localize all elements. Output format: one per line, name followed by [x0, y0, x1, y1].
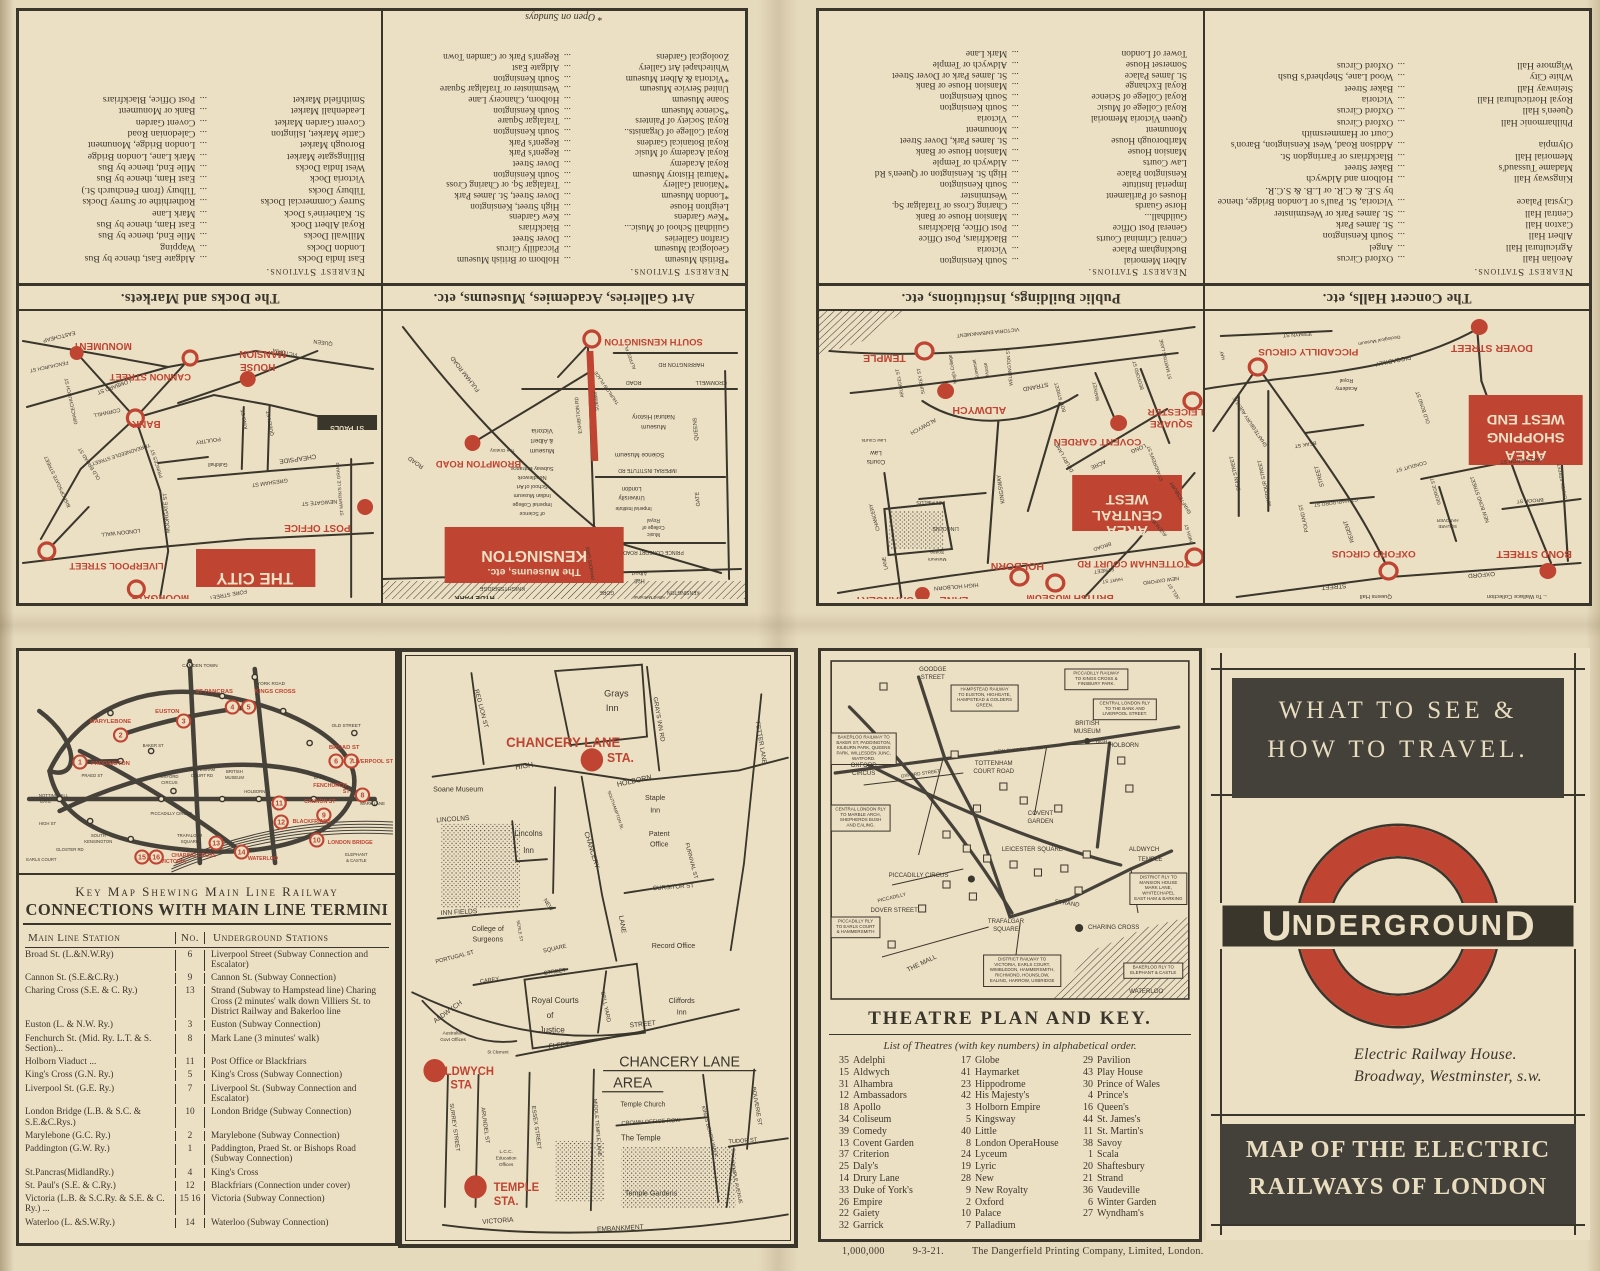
leader-dots: ... — [1393, 173, 1409, 184]
map-label: ROAD — [626, 379, 642, 385]
leader-dots: ... — [1393, 82, 1409, 93]
panel-key-map-connections: CAMDEN TOWNYORK ROAD4ST PANCRAS5KINGS CR… — [16, 648, 398, 1246]
map-label: HYDE PARK — [454, 594, 494, 599]
map-label: HIGH HOLBORN — [934, 581, 979, 591]
place-name: United Service Museum — [575, 84, 729, 95]
place-name: Grafton Galleries — [575, 233, 729, 244]
leader-dots: ... — [195, 184, 211, 195]
theatre-entry: 31 Alhambra — [829, 1079, 947, 1091]
theatre-name: Queen's — [1097, 1102, 1191, 1114]
map-label: Law — [870, 449, 882, 456]
station-name: Victoria, St. Paul's or London Bridge, t… — [1217, 184, 1393, 207]
leader-dots: ... — [195, 128, 211, 139]
concert-text-block-rotated: The Concert Halls, etc. Nearest Stations… — [1205, 11, 1589, 311]
station-name: Baker Street — [1217, 82, 1393, 93]
map-note-line: FINSBURY PARK. — [1078, 681, 1115, 686]
main-line-station: Euston (L. & N.W. Ry.) — [25, 1020, 175, 1030]
station-name: Blackfriars or Farringdon St. — [1217, 150, 1393, 161]
cover-footer-box: MAP OF THE ELECTRIC RAILWAYS OF LONDON — [1220, 1124, 1576, 1224]
station-list-row: Aeolian Hall ... Oxford Circus — [1217, 253, 1573, 264]
map-label: LIVERPOOL ST — [352, 759, 393, 765]
theatre-name: Garrick — [853, 1220, 947, 1232]
theatre-entry: 26 Empire — [829, 1197, 947, 1209]
leader-dots: ... — [559, 148, 575, 159]
leader-dots: ... — [1393, 94, 1409, 105]
station-list-row: Guildhall School of Music... ... Blackfr… — [395, 222, 729, 233]
station-list-row: Queen's Hall ... Oxford Circus — [1217, 105, 1573, 116]
map-label: NOTTING HILL — [39, 793, 69, 798]
connections-table-row: Broad St. (L.&N.W.Ry) 6 Liverpool Street… — [25, 948, 389, 972]
station-list-row: Soane Museum ... Holborn, Chancery Lane — [395, 94, 729, 105]
leader-dots: ... — [1393, 150, 1409, 161]
map-label: SQUARE — [181, 839, 199, 844]
map-label: Albert — [631, 569, 647, 575]
leader-dots: ... — [1393, 207, 1409, 218]
concert-panel-title: The Concert Halls, etc. — [1205, 283, 1589, 311]
theatre-entry: 9 New Royalty — [951, 1185, 1069, 1197]
leader-dots: ... — [1007, 200, 1023, 211]
place-name: Zoological Gardens — [575, 52, 729, 63]
theatre-name: His Majesty's — [975, 1090, 1069, 1102]
station-list-row: Surrey Commercial Docks ... Rotherhithe … — [31, 196, 365, 207]
theatre-number: 12 — [829, 1090, 849, 1102]
map-label: CROMWELL — [695, 379, 727, 385]
map-label: LIVERPOOL STREET — [69, 560, 163, 571]
leader-dots: ... — [559, 126, 575, 137]
theatre-entry: 15 Aldwych — [829, 1067, 947, 1079]
theatre-number: 10 — [951, 1208, 971, 1220]
map-label: COVENT GARDEN — [1054, 436, 1142, 447]
station-name: Kew Gardens — [395, 212, 559, 223]
main-line-station: Charing Cross (S.E. & C. Ry.) — [25, 986, 175, 1017]
station-name: Mark Lane — [31, 207, 195, 218]
station-list-row: Wigmore Hall ... Oxford Circus — [1217, 60, 1573, 71]
map-label: BRITISH MUSEUM — [1026, 592, 1113, 599]
station-list-row: Royal Academy ... Dover Street — [395, 158, 729, 169]
map-label: ALDWYCH — [952, 404, 1006, 415]
map-note-line: TO EUSTON, HIGHGATE, — [958, 692, 1011, 697]
station-list-row: London Docks ... Wapping — [31, 241, 365, 252]
map-note-line: KILBURN PARK, QUEENS — [837, 745, 891, 750]
panel-docks-and-markets: The Docks and Markets. Nearest Stations.… — [19, 11, 381, 603]
horizontal-fold-crease — [0, 612, 1600, 638]
map-label: House — [982, 362, 991, 376]
place-name: Billingsgate Market — [211, 150, 365, 161]
theatre-entry: 13 Covent Garden — [829, 1138, 947, 1150]
station-name: Victoria — [831, 112, 1007, 123]
station-list-row: Geological Museum ... Piccadilly Circus — [395, 244, 729, 255]
map-label: Subway Entrance — [511, 465, 554, 471]
panel-public-buildings: Public Buildings, Institutions, etc. Nea… — [819, 11, 1203, 603]
map-label: BISHOPSGATE STREET — [43, 455, 72, 509]
printer-imprint: 1,000,000 9-3-21. The Dangerfield Printi… — [842, 1246, 1204, 1257]
place-name: Royal Society of Painters — [575, 116, 729, 127]
theatre-number: 4 — [1073, 1090, 1093, 1102]
theatre-name: St. James's — [1097, 1114, 1191, 1126]
map-note-line: TO THE BANK AND — [1105, 706, 1145, 711]
station-list-row: Royal Society of Painters ... Trafalgar … — [395, 116, 729, 127]
map-label: HOLBORN — [991, 560, 1044, 571]
key-number-label: 4 — [230, 705, 234, 712]
map-label: GRACECHURCH ST — [64, 378, 80, 425]
station-dot — [1084, 738, 1090, 744]
map-note-line: MARK LANE, — [1145, 885, 1172, 890]
theatre-entry: 43 Play House — [1073, 1067, 1191, 1079]
theatre-entry: 28 New — [951, 1173, 1069, 1185]
connections-table-row: Cannon St. (S.E.&C.Ry.) 9 Cannon St. (Su… — [25, 972, 389, 985]
main-line-station: St. Paul's (S.E. & C.Ry.) — [25, 1181, 175, 1191]
city-area-map: MONUMENTMANSIONHOUSECANNON STREETBANKCOR… — [19, 311, 381, 599]
station-name: South Kensington — [831, 254, 1007, 265]
connections-table-row: King's Cross (G.N. Ry.) 5 King's Cross (… — [25, 1069, 389, 1082]
map-label: BRITISH — [226, 769, 243, 774]
main-line-station: King's Cross (G.N. Ry.) — [25, 1070, 175, 1080]
station-list-row: Mansion House ... Mansion House or Bank — [831, 145, 1187, 156]
map-label: LONDON WALL — [101, 527, 141, 537]
map-label: PRAED ST — [82, 773, 104, 778]
connections-table-row: St.Pancras(MidlandRy.) 4 King's Cross — [25, 1166, 389, 1179]
map-label: CANNON ST — [304, 799, 336, 805]
place-name: Geological Museum — [575, 244, 729, 255]
place-name: Law Courts — [1023, 156, 1187, 167]
map-label: DOVER STREET — [1450, 342, 1533, 353]
station-name: Dover Street, St. James Park — [395, 190, 559, 201]
map-label: HIGH — [1096, 739, 1108, 744]
theatre-number: 9 — [951, 1185, 971, 1197]
station-list-row: *Science Museum ... South Kensington — [395, 105, 729, 116]
map-note-line: HAMPSTEAD & GOLDERS — [957, 697, 1012, 702]
leader-dots: ... — [559, 84, 575, 95]
station-name: Mile End, thence by Bus — [31, 230, 195, 241]
map-label: DEAN STREET — [1229, 455, 1243, 491]
map-label: ALDWYCH — [1129, 847, 1159, 853]
underground-station: King's Cross (Subway Connection) — [205, 1070, 389, 1080]
map-label: BRITISH — [1075, 721, 1099, 727]
station-dot — [39, 543, 55, 559]
map-label: SQUARE — [993, 927, 1019, 933]
map-label: NEW OXFORD STREET — [994, 745, 1046, 754]
station-name: Mansion House or Bank — [831, 80, 1007, 91]
map-label: London — [622, 485, 642, 491]
map-label: MARK LANE — [360, 801, 385, 806]
map-label: MONUMENT — [73, 340, 132, 351]
station-name: Mark Lane — [831, 47, 1007, 58]
theatre-name: Prince of Wales — [1097, 1079, 1191, 1091]
theatre-entry: 30 Prince of Wales — [1073, 1079, 1191, 1091]
place-name: Horse Guards — [1023, 200, 1187, 211]
map-label: Museum — [928, 556, 947, 562]
station-list-row: East India Docks ... Aldgate East, thenc… — [31, 253, 365, 264]
underground-station: Euston (Subway Connection) — [205, 1020, 389, 1030]
station-list-row: Caxton Hall ... St. James Park — [1217, 219, 1573, 230]
map-label: Law Courts — [861, 437, 886, 443]
station-name: Bank or Monument — [31, 105, 195, 116]
theatre-entry: 33 Duke of York's — [829, 1185, 947, 1197]
map-label: The Museums, etc. — [487, 566, 580, 577]
theatre-list-column-1: 35 Adelphi 15 Aldwych 31 Alhambra 1 — [829, 1055, 947, 1232]
station-name: South Kensington — [395, 105, 559, 116]
station-name: Tilbury (from Fenchurch St.) — [31, 184, 195, 195]
theatre-number: 27 — [1073, 1208, 1093, 1220]
theatre-entry: 4 Prince's — [1073, 1090, 1191, 1102]
place-name: Crystal Palace — [1409, 196, 1573, 207]
station-name: St. James Park or Dover Street — [831, 69, 1007, 80]
key-number: 6 — [175, 950, 205, 971]
map-label: EXHIBITION RD — [574, 396, 584, 434]
station-name: Victoria — [1217, 94, 1393, 105]
station-name: Caledonian Road — [31, 128, 195, 139]
place-name: Soane Museum — [575, 94, 729, 105]
map-label: GARDEN — [1027, 819, 1053, 825]
map-note-line: CENTRAL LONDON RLY — [835, 806, 886, 811]
theatre-number: 38 — [1073, 1138, 1093, 1150]
map-label: BANK — [314, 775, 326, 780]
map-label: LANE — [881, 556, 890, 570]
key-number: 5 — [175, 1070, 205, 1080]
place-name: Borough Market — [211, 139, 365, 150]
leader-dots: ... — [559, 158, 575, 169]
theatre-name: Lyceum — [975, 1149, 1069, 1161]
leader-dots: ... — [559, 105, 575, 116]
theatre-name: Savoy — [1097, 1138, 1191, 1150]
cover-header-line2: HOW TO TRAVEL. — [1232, 731, 1564, 770]
station-list-row: Philharmonic Hall ... Oxford Circus — [1217, 116, 1573, 127]
theatre-entry: 2 Oxford — [951, 1197, 1069, 1209]
key-number-label: 5 — [247, 705, 251, 712]
map-label: FORE STREET — [208, 588, 247, 599]
theatre-name: Little — [975, 1126, 1069, 1138]
map-label: LANE — [940, 594, 969, 599]
station-list-row: Marlborough House ... St. James Park, Do… — [831, 134, 1187, 145]
leader-dots: ... — [1007, 210, 1023, 221]
frame-line — [1211, 1224, 1585, 1226]
theatre-number: 20 — [1073, 1161, 1093, 1173]
theatre-name: Comedy — [853, 1126, 947, 1138]
map-label: CENTRAL — [1092, 507, 1163, 523]
station-name: Wapping — [31, 241, 195, 252]
theatre-list-subtitle: List of Theatres (with key numbers) in a… — [821, 1035, 1199, 1055]
map-label: ST — [343, 789, 351, 795]
station-list-row: Monument ... Monument — [831, 123, 1187, 134]
theatre-number: 23 — [951, 1079, 971, 1091]
theatre-name: Apollo — [853, 1102, 947, 1114]
map-label: DOVER STREET — [871, 908, 919, 914]
map-label: College of — [642, 524, 665, 530]
theatre-name: Ambassadors — [853, 1090, 947, 1102]
chancery-inner-frame — [405, 655, 791, 1241]
place-name: Imperial Institute — [1023, 178, 1187, 189]
place-name: Royal College of Science — [1023, 91, 1187, 102]
leader-dots: ... — [1393, 230, 1409, 241]
station-name: Dover Street — [395, 158, 559, 169]
map-note-line: TO KINGS CROSS & — [1075, 676, 1118, 681]
theatre-number: 8 — [951, 1138, 971, 1150]
map-label: of Science — [519, 510, 544, 516]
leader-dots: ... — [195, 162, 211, 173]
theatre-name: Palace — [975, 1208, 1069, 1220]
map-label: LEICESTER — [1147, 406, 1203, 417]
theatre-entry: 1 Scala — [1073, 1149, 1191, 1161]
leader-dots: ... — [1393, 116, 1409, 127]
station-name: Holborn, Chancery Lane — [395, 94, 559, 105]
leader-dots: ... — [1007, 243, 1023, 254]
underground-station: Marylebone (Subway Connection) — [205, 1131, 389, 1141]
station-list-row: Albert Hall ... South Kensington — [1217, 230, 1573, 241]
station-name: Oxford Circus — [1217, 105, 1393, 116]
connections-table-row: London Bridge (L.B. & S.C. & S.E.&C.Rys.… — [25, 1106, 389, 1130]
public-text-block-rotated: Public Buildings, Institutions, etc. Nea… — [819, 11, 1203, 311]
map-label: KNIGHTSBRIDGE — [479, 585, 525, 591]
map-label: POST OFFICE — [284, 522, 351, 533]
theatre-entry: 38 Savoy — [1073, 1138, 1191, 1150]
map-label: ←To Wallace Collection — [1487, 593, 1548, 599]
theatre-number: 6 — [1073, 1197, 1093, 1209]
theatre-name: London OperaHouse — [975, 1138, 1069, 1150]
station-list-row: Madame Tussaud's ... Baker Street — [1217, 162, 1573, 173]
map-note-line: PICCADILLY RLY — [838, 918, 873, 923]
connections-table-row: Victoria (L.B. & S.C.Ry. & S.E. & C. Ry.… — [25, 1193, 389, 1217]
place-name: Kensington Palace — [1023, 167, 1187, 178]
cover-header-box: WHAT TO SEE & HOW TO TRAVEL. — [1232, 678, 1564, 798]
map-label: NEW OXFORD — [1142, 575, 1179, 586]
station-dot — [1047, 575, 1064, 591]
connections-table-header: Main Line Station No. Underground Statio… — [25, 929, 389, 948]
theatre-plan-map: GOODGESTREETHAMPSTEAD RAILWAYTO EUSTON, … — [821, 655, 1199, 1003]
place-name: *Kew Gardens — [575, 212, 729, 223]
map-label: Courts — [867, 458, 886, 465]
map-label: MOORGATE ST — [162, 492, 171, 533]
station-list-row: Royal Horticultural Hall ... Victoria — [1217, 94, 1573, 105]
map-label: CIRCUS — [852, 771, 875, 777]
theatre-name: Globe — [975, 1055, 1069, 1067]
underground-station: King's Cross — [205, 1168, 389, 1178]
map-label: LEICESTER SQUARE — [1002, 847, 1063, 853]
place-name: Royal Exchange — [1023, 80, 1187, 91]
leader-dots: ... — [559, 190, 575, 201]
place-name: Tower of London — [1023, 47, 1187, 58]
map-note-line: VICTORIA, EARLS COURT, — [994, 962, 1050, 967]
map-label: STREET — [1321, 582, 1347, 591]
station-list-row: Houses of Parliament ... Westminster — [831, 189, 1187, 200]
theatre-entry: 21 Strand — [1073, 1173, 1191, 1185]
map-label: GORE — [599, 589, 614, 595]
main-line-station: Cannon St. (S.E.&C.Ry.) — [25, 973, 175, 983]
leader-dots: ... — [559, 212, 575, 223]
connections-table-row: Waterloo (L. &S.W.Ry.) 14 Waterloo (Subw… — [25, 1216, 389, 1229]
place-name: Royal College of Organists.. — [575, 126, 729, 137]
station-name: High St. Kensington or Queen's Rd — [831, 167, 1007, 178]
railway-key-map: CAMDEN TOWNYORK ROAD4ST PANCRAS5KINGS CR… — [19, 651, 395, 875]
map-label: KING ST — [240, 409, 249, 430]
map-label: STREET — [921, 675, 945, 681]
map-label: QUEEN ST — [265, 410, 275, 436]
main-line-station: Paddington (G.W. Ry.) — [25, 1144, 175, 1165]
map-label: & CASTLE — [346, 858, 367, 863]
station-list-row: Royal Botanical Gardens ... Regent's Par… — [395, 137, 729, 148]
place-name: Steinway Hall — [1409, 82, 1573, 93]
map-label: ST PAULS — [330, 424, 364, 431]
map-label: EARLS COURT — [26, 857, 57, 862]
theatre-number: 7 — [951, 1220, 971, 1232]
map-label: MOORGATE — [131, 592, 189, 599]
theatre-number: 29 — [1073, 1055, 1093, 1067]
map-label: HARRINGTON RD — [658, 361, 704, 367]
map-label: Needlework — [518, 474, 547, 480]
leader-dots: ... — [195, 116, 211, 127]
map-note-line: AND EALING. — [847, 823, 875, 828]
docks-panel-title: The Docks and Markets. — [19, 283, 381, 311]
leader-dots: ... — [1007, 47, 1023, 58]
map-label: CHANCERY — [868, 502, 882, 531]
station-name: Monument — [831, 123, 1007, 134]
station-list-row: Kingsway Hall ... Holborn and Aldwych — [1217, 173, 1573, 184]
theatre-number: 16 — [1073, 1102, 1093, 1114]
station-list-row: Law Courts ... Aldwych or Temple — [831, 156, 1187, 167]
station-name: Angel — [1217, 241, 1393, 252]
map-label: King's College — [947, 354, 958, 384]
map-label: Natural History — [631, 413, 674, 420]
theatre-name: Winter Garden — [1097, 1197, 1191, 1209]
theatre-name: Scala — [1097, 1149, 1191, 1161]
place-name: St. James Palace — [1023, 69, 1187, 80]
panel-cover: WHAT TO SEE & HOW TO TRAVEL. UNDERGROUND… — [1206, 648, 1590, 1240]
theatre-number: 34 — [829, 1114, 849, 1126]
station-name: Oxford Circus — [1217, 116, 1393, 127]
map-label: ST MARTINS LANE — [1159, 339, 1174, 380]
station-name: Victoria — [831, 243, 1007, 254]
logo-letter-last: D — [1504, 905, 1534, 947]
place-name: Victoria Dock — [211, 173, 365, 184]
map-label: Academy — [1335, 385, 1357, 391]
station-list-row: Billingsgate Market ... Mark Lane, Londo… — [31, 150, 365, 161]
map-label: WATERLOO — [1129, 989, 1163, 995]
key-number-label: 8 — [361, 793, 365, 800]
leader-dots: ... — [1007, 189, 1023, 200]
theatre-name: Lyric — [975, 1161, 1069, 1173]
station-name: Wood Lane, Shepherd's Bush — [1217, 71, 1393, 82]
station-name: Aldwych or Temple — [831, 58, 1007, 69]
river-corner — [819, 311, 903, 355]
map-label: Science Museum — [615, 451, 664, 458]
theatre-entry: 5 Kingsway — [951, 1114, 1069, 1126]
place-name: *National Gallery — [575, 180, 729, 191]
public-panel-title: Public Buildings, Institutions, etc. — [819, 283, 1203, 311]
place-name: London Docks — [211, 241, 365, 252]
map-label: HOLBORN — [244, 789, 265, 794]
map-label: PICCADILLY CIRCUS — [889, 873, 949, 879]
theatre-entry: 32 Garrick — [829, 1220, 947, 1232]
key-number: 11 — [175, 1057, 205, 1067]
map-label: GLOSTER RD — [56, 847, 84, 852]
key-map-heading: Key Map Shewing Main Line Railway — [19, 884, 395, 900]
station-dot — [584, 331, 600, 347]
panel-chancery-lane-area: GraysInnGRAYS INN RDRED LION STCHANCERY … — [398, 648, 798, 1248]
station-list-row: Tilbury Docks ... Tilbury (from Fenchurc… — [31, 184, 365, 195]
station-dot — [1249, 359, 1266, 375]
connections-table-row: Euston (L. & N.W. Ry.) 3 Euston (Subway … — [25, 1019, 389, 1032]
theatre-number: 28 — [951, 1173, 971, 1185]
map-label: University — [619, 494, 645, 500]
station-name: Mansion House or Bank — [831, 210, 1007, 221]
leader-dots: ... — [1007, 112, 1023, 123]
leader-dots: ... — [559, 94, 575, 105]
leader-dots: ... — [195, 219, 211, 230]
map-label: Guildhall — [208, 461, 227, 467]
station-dot — [465, 435, 481, 451]
underground-station: Victoria (Subway Connection) — [205, 1194, 389, 1215]
station-name: Dover Street — [395, 233, 559, 244]
map-label: REGENT — [1343, 519, 1356, 543]
